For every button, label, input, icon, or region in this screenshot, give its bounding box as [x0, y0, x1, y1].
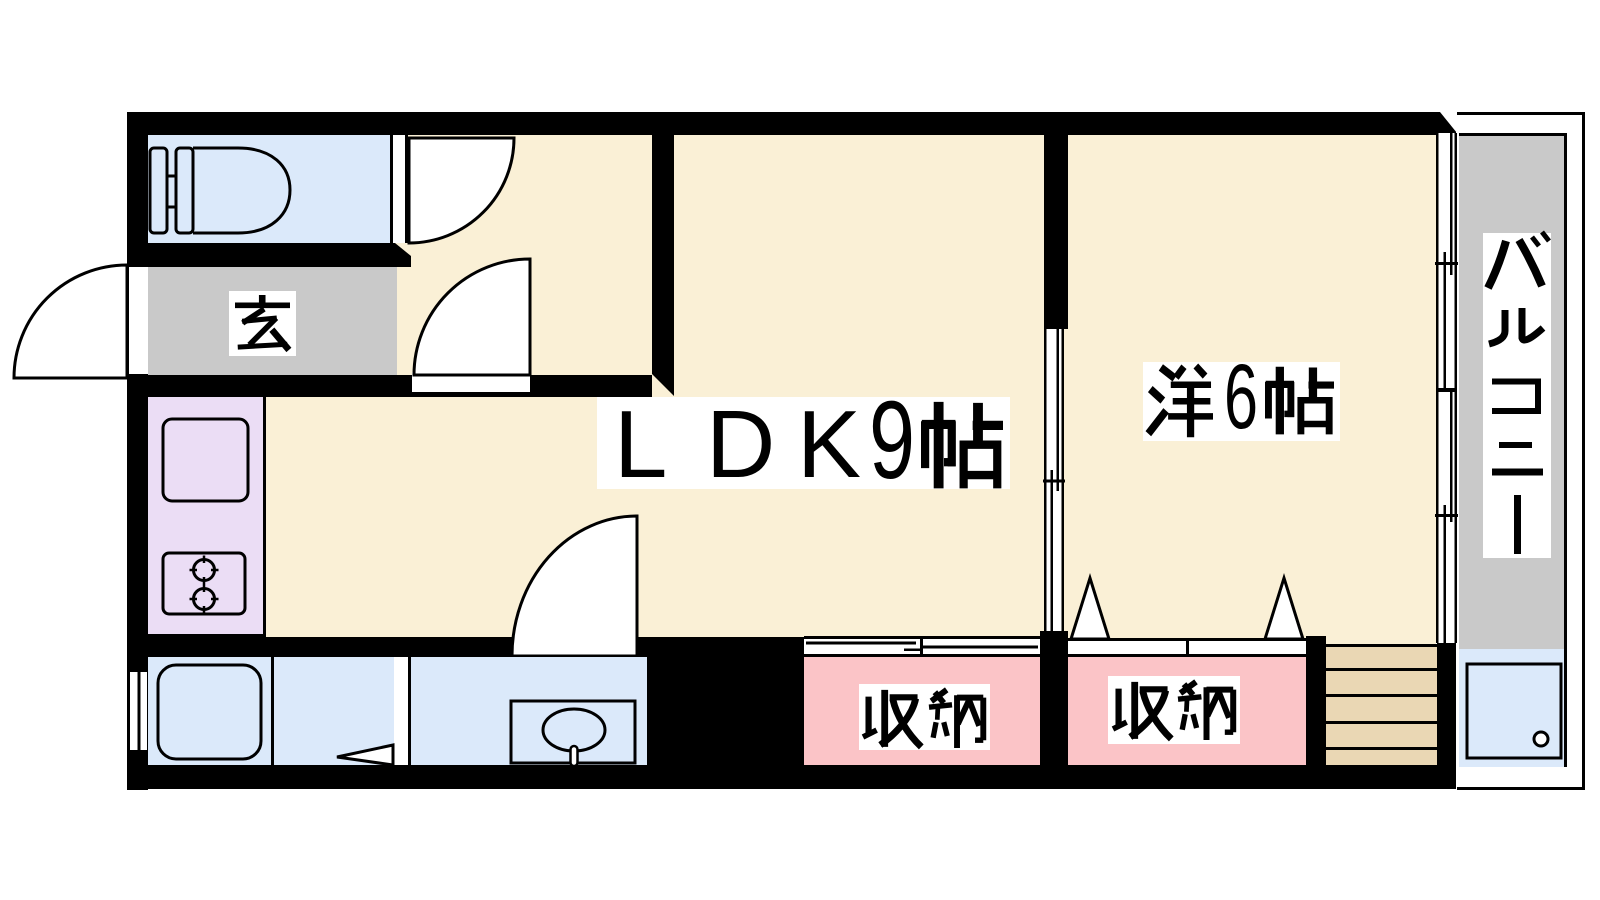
svg-text:D: D: [706, 391, 775, 498]
svg-text:6: 6: [1224, 346, 1258, 448]
svg-text:9: 9: [869, 379, 915, 502]
svg-text:L: L: [614, 391, 667, 498]
svg-text:K: K: [797, 391, 861, 498]
